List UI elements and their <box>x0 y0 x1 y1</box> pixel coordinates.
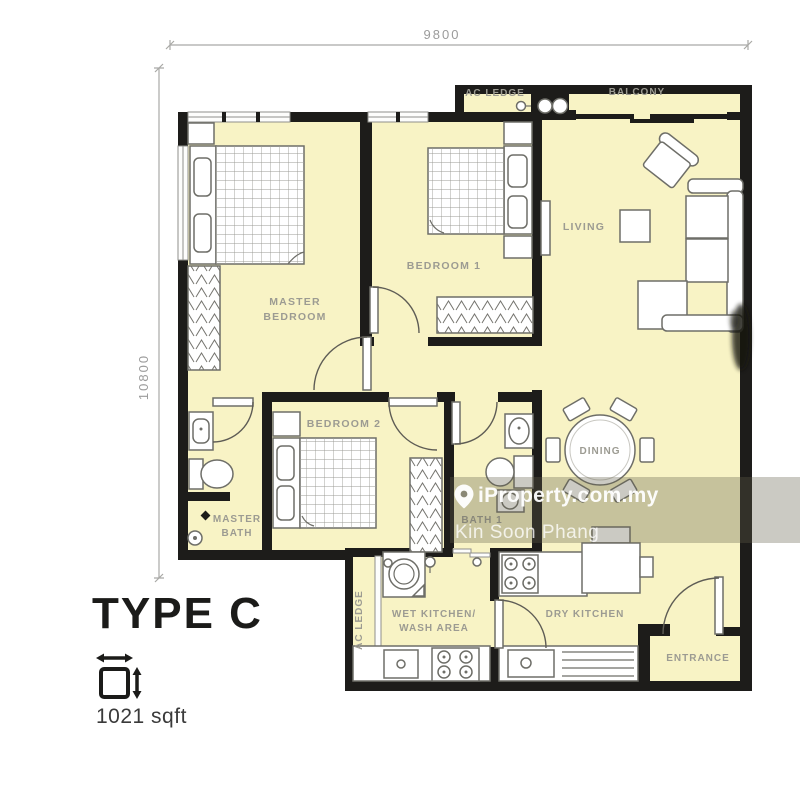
nightstand-icon <box>504 122 532 144</box>
label-entrance: ENTRANCE <box>666 653 730 664</box>
toilet-icon <box>189 459 233 489</box>
floor-trap-icon <box>473 558 481 566</box>
dimension-width-label: 9800 <box>424 27 461 42</box>
label-bedroom1: BEDROOM 1 <box>407 260 481 272</box>
label-master-bath: BATH <box>221 528 252 539</box>
label-bedroom2: BEDROOM 2 <box>307 418 381 430</box>
wardrobe-icon <box>188 266 220 370</box>
coffee-table-icon <box>620 210 650 242</box>
bed-icon <box>273 438 376 528</box>
shower-icon <box>188 531 202 545</box>
dimension-height-label: 10800 <box>136 354 151 400</box>
sink-icon <box>505 414 533 448</box>
kitchen-sink-icon <box>508 650 554 677</box>
title-block: TYPE C 1021 sqft <box>92 589 263 728</box>
wardrobe-icon <box>410 458 442 552</box>
watermark: iProperty.com.my Kin Soon Phang <box>450 477 800 543</box>
nightstand-icon <box>504 236 532 258</box>
nightstand-icon <box>273 412 300 436</box>
floorplan-page: 9800 10800 <box>0 0 800 800</box>
sink-icon <box>189 412 213 450</box>
room-bedroom1 <box>428 122 533 333</box>
window-icon <box>368 112 428 122</box>
label-wet-kitchen: WASH AREA <box>399 623 469 634</box>
label-ac-ledge-left: AC LEDGE <box>354 590 365 650</box>
plan-title: TYPE C <box>92 589 263 638</box>
floor-trap-icon <box>384 559 392 567</box>
label-ac-ledge-top: AC LEDGE <box>465 88 525 99</box>
nightstand-icon <box>188 123 214 144</box>
stove-icon <box>502 555 538 593</box>
dimension-left: 10800 <box>136 64 164 582</box>
label-dry-kitchen: DRY KITCHEN <box>546 609 625 620</box>
label-master-bath: MASTER <box>213 514 261 525</box>
watermark-brand: iProperty.com.my <box>478 484 659 507</box>
label-master-bedroom: MASTER <box>269 296 321 308</box>
label-balcony: BALCONY <box>609 87 665 98</box>
label-living: LIVING <box>563 221 605 233</box>
size-icon <box>96 654 142 700</box>
label-wet-kitchen: WET KITCHEN/ <box>392 609 476 620</box>
wardrobe-icon <box>437 297 533 333</box>
stove-icon <box>432 648 479 681</box>
tv-console-icon <box>541 201 550 255</box>
watermark-agent: Kin Soon Phang <box>455 522 599 543</box>
label-dining: DINING <box>580 446 621 457</box>
bed-icon <box>190 146 304 264</box>
dimension-top: 9800 <box>166 27 752 50</box>
kitchen-sink-icon <box>384 650 418 678</box>
floorplan-drawing: 9800 10800 <box>0 0 800 800</box>
window-icon <box>178 146 188 260</box>
bed-icon <box>428 146 532 234</box>
label-master-bedroom: BEDROOM <box>263 311 326 323</box>
window-icon <box>188 112 290 122</box>
plan-area: 1021 sqft <box>96 705 187 728</box>
